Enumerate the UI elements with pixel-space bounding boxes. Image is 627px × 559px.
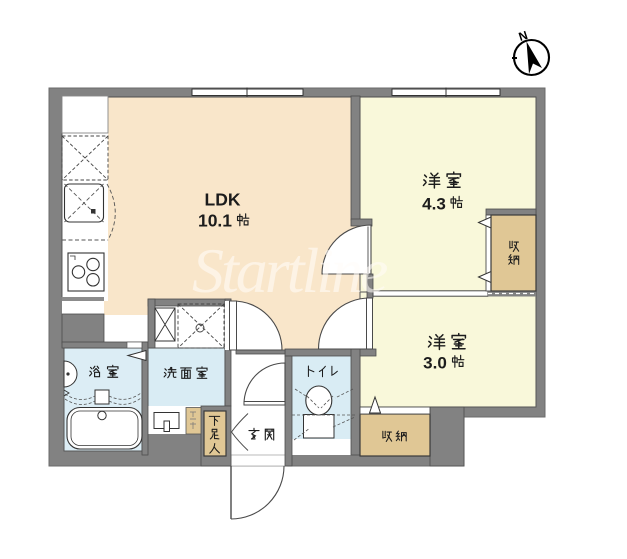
svg-text:3.0: 3.0 [423,354,447,373]
svg-text:4.3: 4.3 [422,195,446,214]
svg-text:Startline: Startline [192,235,387,306]
svg-text:N: N [517,28,530,44]
svg-text:10.1: 10.1 [198,211,232,231]
svg-text:LDK: LDK [205,190,241,210]
